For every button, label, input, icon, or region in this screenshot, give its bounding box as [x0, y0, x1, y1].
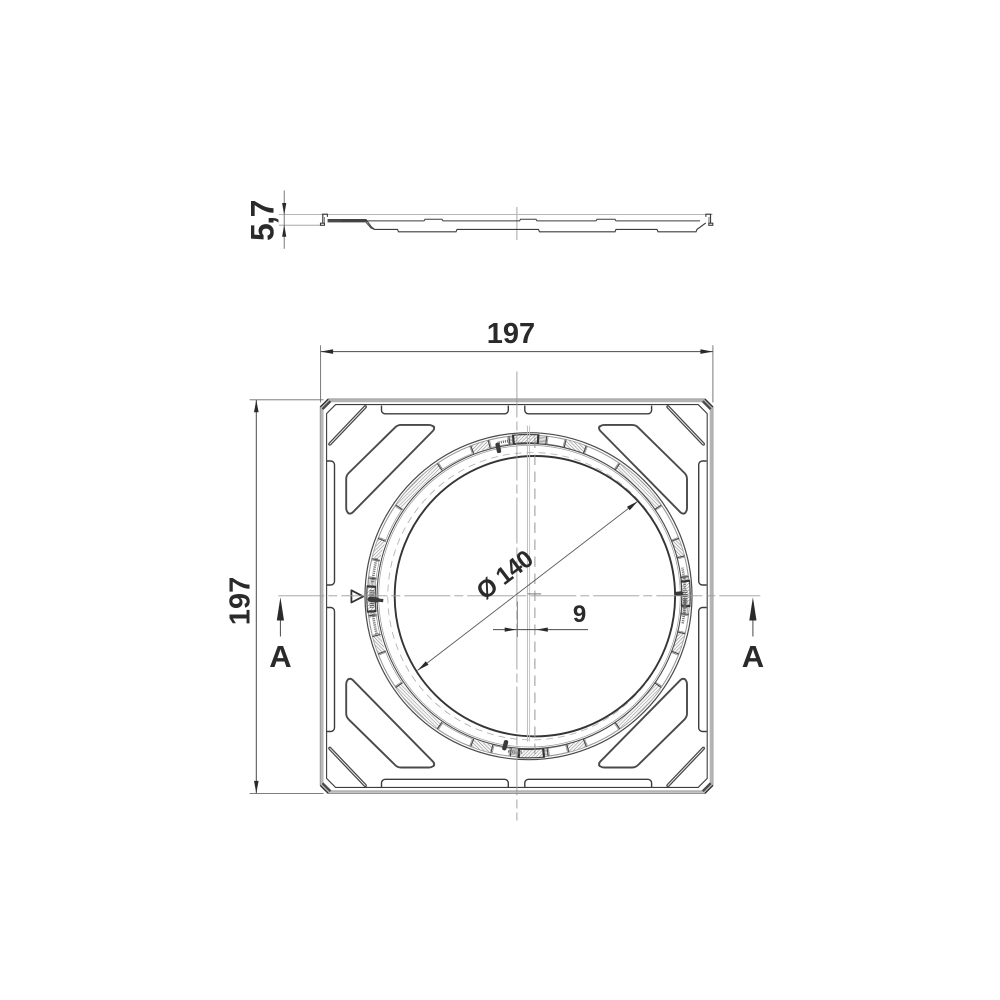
svg-text:A: A — [742, 639, 764, 674]
svg-text:A: A — [269, 639, 291, 674]
svg-text:197: 197 — [487, 318, 535, 350]
svg-text:197: 197 — [225, 577, 257, 625]
svg-text:9: 9 — [573, 601, 586, 628]
svg-text:5,7: 5,7 — [245, 200, 281, 241]
